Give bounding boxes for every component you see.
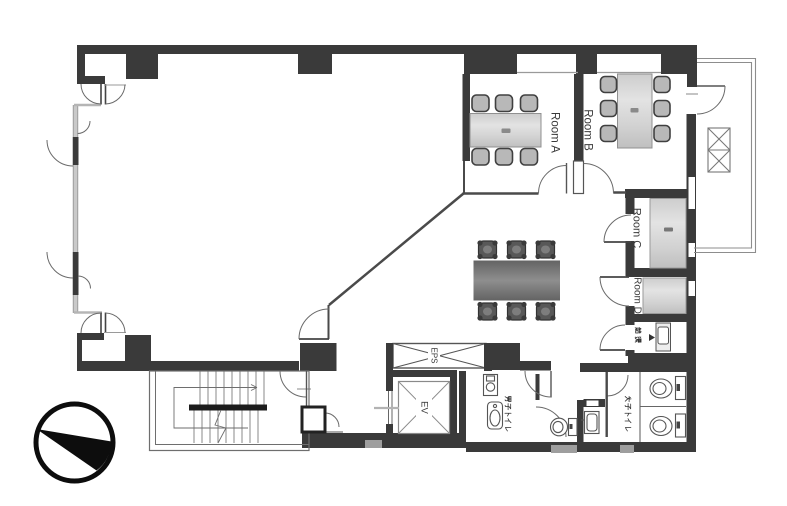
svg-text:Room A: Room A [549, 112, 561, 153]
svg-text:EPS: EPS [430, 347, 439, 363]
svg-text:Room C: Room C [631, 208, 643, 248]
svg-text:EV: EV [419, 401, 430, 414]
svg-text:Room D: Room D [632, 277, 643, 314]
svg-text:Room B: Room B [582, 109, 594, 151]
